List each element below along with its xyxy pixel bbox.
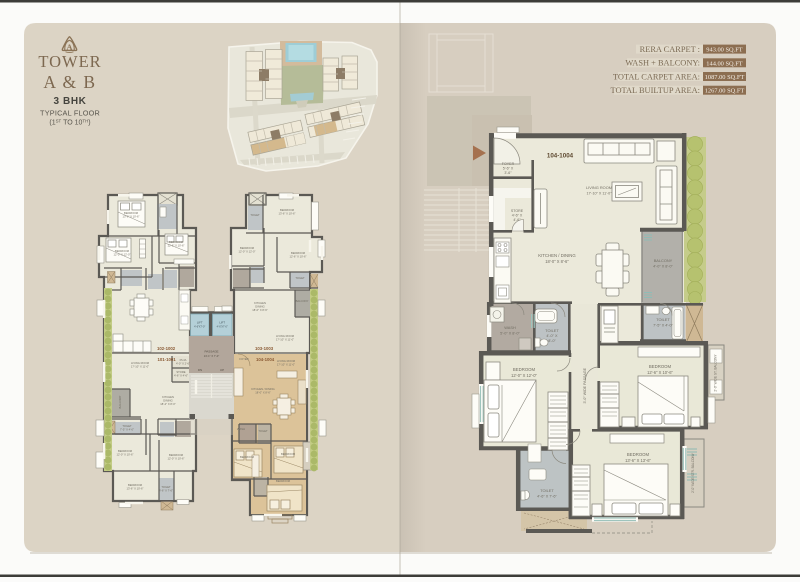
svg-text:LIFT: LIFT: [197, 321, 203, 325]
svg-text:BEDROOM: BEDROOM: [291, 251, 306, 255]
svg-text:4'-6" X 7'-6": 4'-6" X 7'-6": [159, 489, 173, 493]
svg-text:BEDROOM: BEDROOM: [240, 455, 255, 459]
svg-text:TOTAL BUILTUP AREA:: TOTAL BUILTUP AREA:: [611, 86, 700, 95]
svg-text:BEDROOM: BEDROOM: [124, 211, 139, 215]
svg-text:4'-6" X: 4'-6" X: [512, 214, 523, 218]
svg-text:TOILET: TOILET: [656, 317, 670, 322]
svg-text:18'-0" X 8'-6": 18'-0" X 8'-6": [545, 259, 569, 264]
svg-text:3'-6": 3'-6": [504, 171, 512, 175]
svg-text:STORE: STORE: [511, 209, 524, 213]
svg-text:TOILET: TOILET: [122, 424, 132, 428]
svg-text:BEDROOM: BEDROOM: [128, 483, 143, 487]
svg-text:BALCONY: BALCONY: [118, 395, 122, 408]
svg-text:BEDROOM: BEDROOM: [281, 452, 296, 456]
svg-text:18'-0" X 8'-6": 18'-0" X 8'-6": [252, 308, 268, 312]
svg-text:943.00 SQ.FT: 943.00 SQ.FT: [706, 47, 742, 54]
svg-text:BEDROOM: BEDROOM: [240, 246, 255, 250]
svg-text:TOILET: TOILET: [161, 485, 171, 489]
svg-text:17'-10" X 11'-0": 17'-10" X 11'-0": [586, 192, 612, 196]
svg-text:3'-0" WIDE PASSAGE: 3'-0" WIDE PASSAGE: [583, 367, 587, 403]
svg-text:12'-0" X 12'-0": 12'-0" X 12'-0": [239, 250, 256, 254]
svg-text:KITCHEN: KITCHEN: [162, 395, 174, 399]
svg-text:LIVING ROOM: LIVING ROOM: [586, 185, 612, 190]
svg-text:WASH: WASH: [504, 325, 516, 330]
svg-text:4'-0" X: 4'-0" X: [546, 334, 558, 338]
svg-text:A & B: A & B: [43, 72, 96, 92]
svg-text:13'-6" X 13'-6": 13'-6" X 13'-6": [625, 458, 651, 463]
svg-text:4'-6"X7'-0": 4'-6"X7'-0": [194, 326, 205, 329]
svg-text:FOYER: FOYER: [239, 357, 248, 361]
svg-text:FOYER: FOYER: [502, 162, 515, 166]
svg-text:12'-0" X 10'-6": 12'-0" X 10'-6": [117, 453, 134, 457]
svg-text:RERA CARPET :: RERA CARPET :: [640, 45, 700, 54]
svg-text:TOILET: TOILET: [258, 429, 268, 433]
svg-text:TOTAL CARPET AREA:: TOTAL CARPET AREA:: [613, 72, 700, 81]
svg-text:BALCONY: BALCONY: [296, 299, 309, 303]
svg-text:103-1003: 103-1003: [255, 346, 274, 351]
svg-text:7'-5" X 4'-0": 7'-5" X 4'-0": [120, 428, 134, 432]
svg-text:12'-6" X 10'-6": 12'-6" X 10'-6": [168, 244, 185, 248]
svg-text:5'-6" X: 5'-6" X: [503, 167, 514, 171]
svg-text:2'-0" WIDE ST. BALCONY: 2'-0" WIDE ST. BALCONY: [714, 354, 718, 392]
svg-text:BALCONY: BALCONY: [654, 258, 673, 263]
svg-text:17'-10" X 11'-0": 17'-10" X 11'-0": [276, 338, 294, 342]
svg-text:12'-0" X 12'-0": 12'-0" X 12'-0": [114, 253, 131, 257]
svg-text:BEDROOM: BEDROOM: [276, 479, 291, 483]
svg-text:7'-5" X 4'-0": 7'-5" X 4'-0": [653, 324, 673, 328]
svg-text:LIVING ROOM: LIVING ROOM: [131, 361, 150, 365]
svg-text:101-1001: 101-1001: [158, 357, 177, 362]
svg-text:5'-0" X 8'-0": 5'-0" X 8'-0": [500, 332, 520, 336]
svg-text:WASH: WASH: [237, 427, 245, 431]
svg-text:104-1004: 104-1004: [547, 153, 574, 160]
svg-text:4'-6"X7'-0": 4'-6"X7'-0": [217, 326, 228, 329]
svg-text:BEDROOM: BEDROOM: [627, 452, 650, 457]
svg-text:WASH + BALCONY:: WASH + BALCONY:: [625, 59, 700, 68]
svg-text:BEDROOM: BEDROOM: [118, 449, 133, 453]
svg-text:TOILET: TOILET: [545, 328, 559, 333]
svg-text:12'-0" X 10'-6": 12'-0" X 10'-6": [168, 457, 185, 461]
svg-text:2'-0" WIDE STR. BALCONY: 2'-0" WIDE STR. BALCONY: [691, 452, 695, 493]
svg-text:UP: UP: [220, 368, 224, 372]
svg-text:TOWER: TOWER: [38, 52, 101, 71]
svg-text:3 BHK: 3 BHK: [53, 96, 86, 107]
svg-text:13'-1" X 7'-0": 13'-1" X 7'-0": [204, 354, 220, 358]
svg-text:13'-6" X 10'-6": 13'-6" X 10'-6": [279, 212, 296, 216]
svg-text:144.00 SQ.FT: 144.00 SQ.FT: [706, 60, 742, 67]
svg-text:13'-6" X 10'-6": 13'-6" X 10'-6": [123, 215, 140, 219]
svg-text:4'-0" X 2'-6": 4'-0" X 2'-6": [176, 362, 190, 366]
svg-text:KITCHEN / DINING: KITCHEN / DINING: [538, 253, 576, 258]
svg-text:4'-0" X 8'-0": 4'-0" X 8'-0": [653, 265, 673, 269]
svg-text:13'-6" X 10'-6": 13'-6" X 10'-6": [127, 487, 144, 491]
svg-text:17'-10" X 11'-0": 17'-10" X 11'-0": [277, 363, 295, 367]
svg-text:DINING: DINING: [163, 399, 172, 403]
svg-text:8'-0": 8'-0": [548, 339, 556, 343]
svg-text:BEDROOM: BEDROOM: [513, 367, 536, 372]
svg-text:LIVING ROOM: LIVING ROOM: [276, 334, 295, 338]
svg-text:TOILET: TOILET: [250, 213, 260, 217]
svg-text:LIFT: LIFT: [219, 321, 225, 325]
svg-text:18'-0" X 8'-6": 18'-0" X 8'-6": [255, 391, 271, 395]
svg-text:1087.00 SQ.FT: 1087.00 SQ.FT: [705, 74, 745, 81]
svg-text:A: A: [66, 42, 73, 52]
svg-text:104-1004: 104-1004: [256, 357, 275, 362]
svg-text:DN: DN: [198, 368, 202, 372]
svg-text:4'-6": 4'-6": [513, 218, 521, 222]
svg-text:102-1002: 102-1002: [157, 346, 176, 351]
svg-text:BEDROOM: BEDROOM: [280, 208, 295, 212]
svg-text:12'-6" X 10'-6": 12'-6" X 10'-6": [290, 255, 307, 259]
svg-text:STORE: STORE: [176, 370, 185, 374]
svg-text:TOILET: TOILET: [295, 276, 305, 280]
svg-text:12'-6" X 10'-6": 12'-6" X 10'-6": [647, 370, 673, 375]
svg-text:18'-2" X 8'-0": 18'-2" X 8'-0": [160, 402, 176, 406]
svg-text:TYPICAL FLOOR: TYPICAL FLOOR: [40, 109, 100, 118]
svg-text:17'-10" X 11'-0": 17'-10" X 11'-0": [131, 365, 149, 369]
svg-text:KITCHEN: KITCHEN: [254, 301, 266, 305]
svg-text:PASSAGE: PASSAGE: [204, 350, 218, 354]
svg-text:BEDROOM: BEDROOM: [649, 364, 672, 369]
svg-text:BEDROOM: BEDROOM: [115, 249, 130, 253]
svg-text:BEDROOM: BEDROOM: [169, 240, 184, 244]
svg-text:DINING: DINING: [255, 305, 264, 309]
svg-text:KITCHEN / DINING: KITCHEN / DINING: [251, 387, 274, 391]
svg-text:12'-0" X 12'-0": 12'-0" X 12'-0": [511, 373, 537, 378]
svg-text:4'-6" X 4'-6": 4'-6" X 4'-6": [174, 374, 188, 378]
svg-text:BEDROOM: BEDROOM: [169, 453, 184, 457]
svg-text:4'-6" X 7'-6": 4'-6" X 7'-6": [537, 495, 557, 499]
svg-text:1267.00 SQ.FT: 1267.00 SQ.FT: [705, 88, 745, 95]
svg-text:PUJA: PUJA: [180, 358, 187, 362]
svg-text:LIVING ROOM: LIVING ROOM: [277, 359, 296, 363]
svg-text:TOILET: TOILET: [540, 488, 554, 493]
